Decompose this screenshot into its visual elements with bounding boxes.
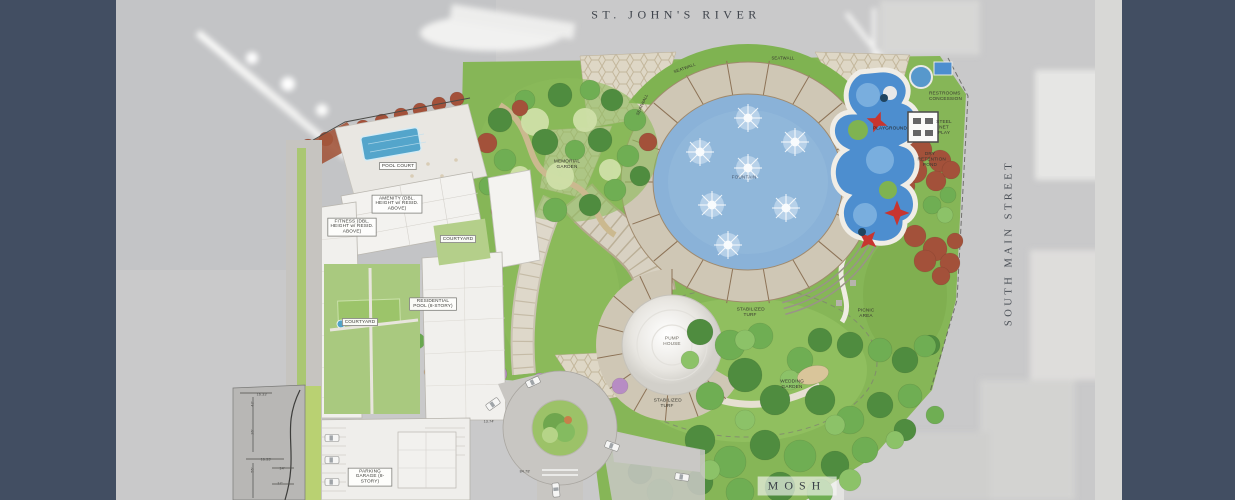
label-picnic-area: PICNIC AREA	[857, 309, 874, 320]
label-stabilized-turf-east: STABILIZED TURF	[737, 308, 764, 319]
label-fitness: FITNESS (DBL. HEIGHT w/ RESID. ABOVE)	[327, 218, 376, 236]
label-stabilized-turf-south: STABILIZED TURF	[654, 399, 681, 410]
label-restrooms-concession: RESTROOMS CONCESSION	[929, 92, 957, 103]
label-courtyard-upper: COURTYARD	[440, 235, 476, 243]
label-dry-retention-pond: DRY RETENTION POND	[918, 152, 943, 168]
dimension-callout: 16.33'	[257, 393, 268, 397]
dimension-callout: 42'	[251, 401, 255, 406]
dimension-callout: 17'	[277, 482, 282, 486]
label-pump-house: PUMP HOUSE	[663, 337, 682, 348]
dimension-callout: 55'	[251, 467, 255, 472]
museum-label: MOSH	[758, 477, 837, 496]
dimension-callout: 16.33'	[261, 458, 272, 462]
label-fountain: FOUNTAIN	[732, 175, 757, 180]
site-plan-rendering	[0, 0, 1235, 500]
dimension-callout: 84.78'	[520, 470, 531, 474]
label-wedding-garden: WEDDING GARDEN	[780, 380, 803, 391]
site-plan-slide: ST. JOHN'S RIVER SOUTH MAIN STREET MOSH …	[0, 0, 1235, 500]
dimension-callout: 14'	[279, 467, 284, 471]
river-label: ST. JOHN'S RIVER	[591, 8, 761, 23]
label-steel-net-play: STEEL NET PLAY	[934, 120, 954, 136]
label-memorial-garden: MEMORIAL GARDEN	[554, 160, 581, 171]
dimension-callout: 26'	[251, 429, 255, 434]
frame-bar-right	[1122, 0, 1235, 500]
street-label: SOUTH MAIN STREET	[1004, 160, 1015, 326]
label-courtyard-lower: COURTYARD	[342, 318, 378, 326]
label-seatwall-ne: SEATWALL	[771, 57, 794, 62]
frame-bar-left	[0, 0, 116, 500]
label-residential-pool: RESIDENTIAL POOL (8-STORY)	[409, 297, 457, 310]
label-parking-garage: PARKING GARAGE (8-STORY)	[348, 468, 392, 486]
label-playground: PLAYGROUND	[873, 126, 907, 131]
label-amenity: AMENITY (DBL. HEIGHT w/ RESID. ABOVE)	[372, 195, 423, 213]
label-pool-court: POOL COURT	[379, 162, 417, 170]
dimension-callout: 13.74'	[484, 420, 495, 424]
